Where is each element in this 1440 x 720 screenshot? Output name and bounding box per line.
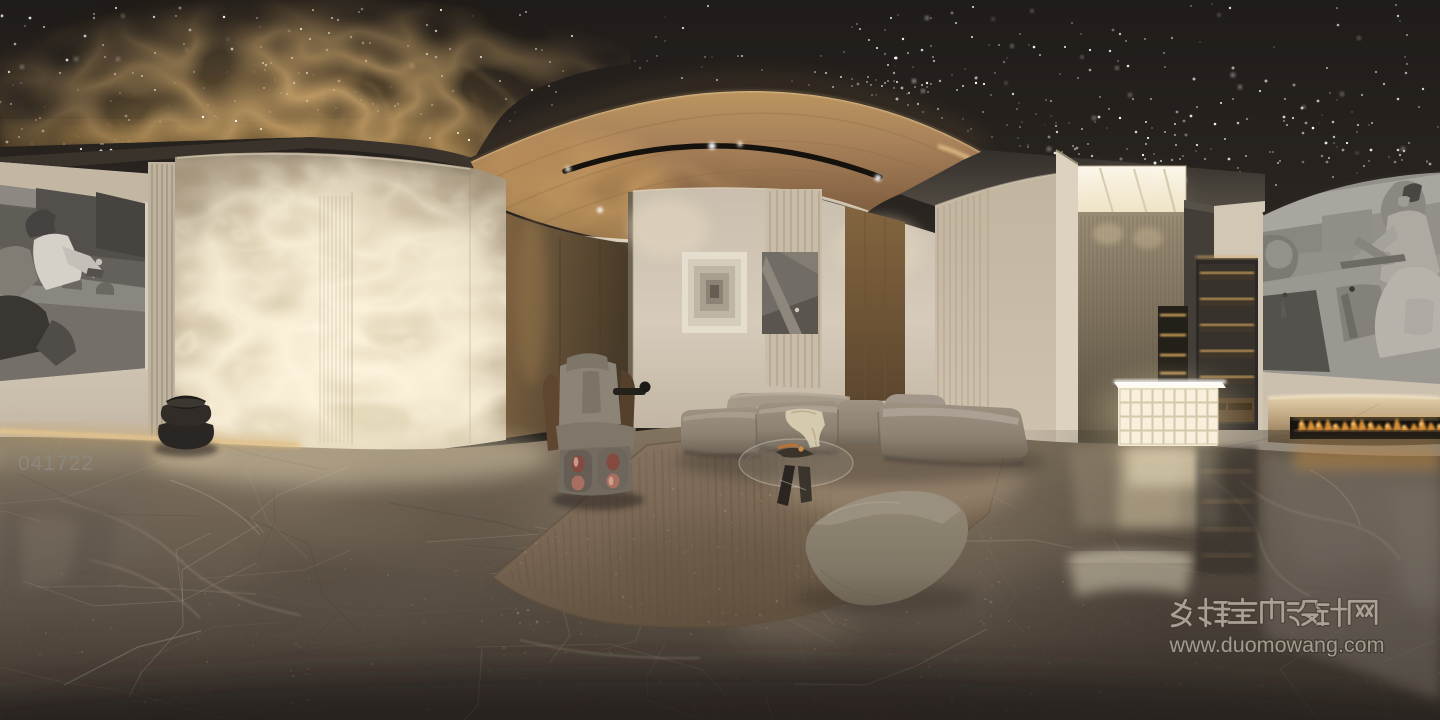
svg-text:041722: 041722: [18, 452, 94, 475]
svg-text:www.duomowang.com: www.duomowang.com: [1168, 633, 1384, 657]
